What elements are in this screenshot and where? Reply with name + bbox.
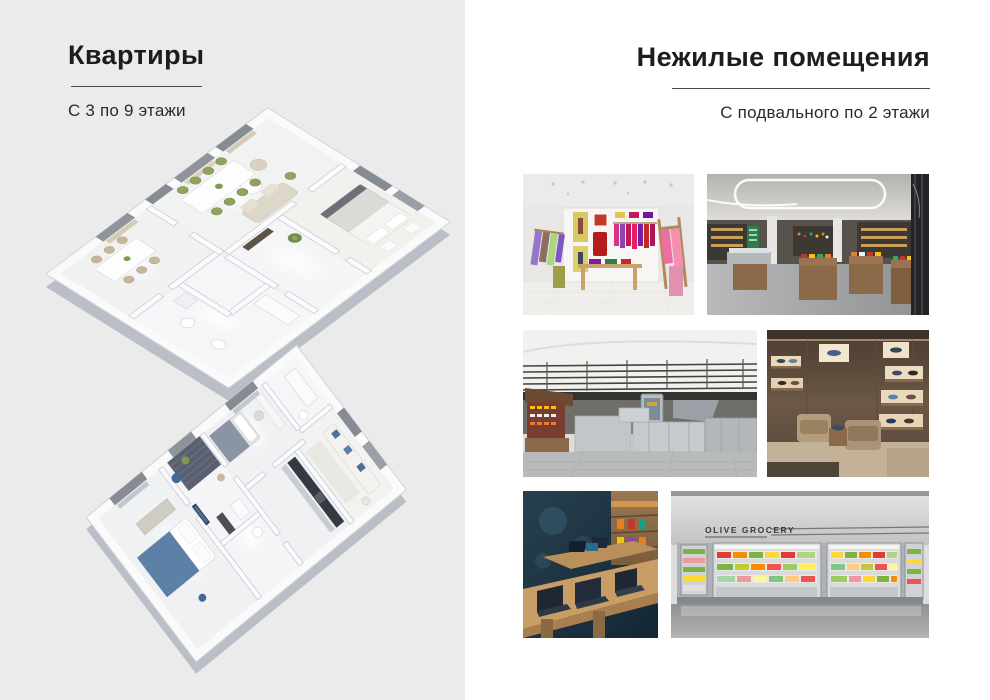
title-divider-line bbox=[672, 88, 930, 89]
grocery-fridge-wall-photo: OLIVE GROCERY bbox=[671, 491, 929, 638]
apartment-floorplan-bottom bbox=[86, 345, 406, 674]
commercial-title: Нежилые помещения bbox=[637, 42, 930, 73]
grocery-signage-text: OLIVE GROCERY bbox=[705, 525, 795, 535]
apartment-floorplan-top bbox=[46, 108, 450, 401]
apartments-section: Квартиры С 3 по 9 этажи bbox=[0, 0, 465, 700]
title-divider-line bbox=[71, 86, 202, 87]
electronics-store-photo bbox=[523, 491, 658, 638]
apartments-header: Квартиры С 3 по 9 этажи bbox=[68, 40, 204, 121]
commercial-section: Нежилые помещения С подвального по 2 эта… bbox=[465, 0, 990, 700]
commercial-header: Нежилые помещения С подвального по 2 эта… bbox=[637, 42, 930, 123]
clothing-boutique-photo bbox=[523, 174, 694, 315]
market-hall-photo bbox=[707, 174, 929, 315]
apartments-subtitle: С 3 по 9 этажи bbox=[68, 101, 204, 121]
food-court-photo bbox=[523, 330, 757, 477]
commercial-subtitle: С подвального по 2 этажи bbox=[637, 103, 930, 123]
shoe-store-photo bbox=[767, 330, 929, 477]
brochure-page: { "slide": { "left": { "title": "Квартир… bbox=[0, 0, 990, 700]
apartments-title: Квартиры bbox=[68, 40, 204, 71]
